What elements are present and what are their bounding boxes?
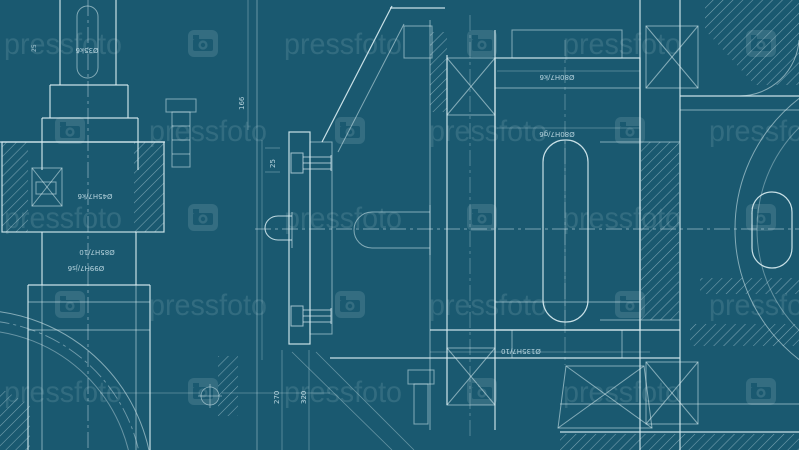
pressfoto-logo-icon [746,204,776,231]
pressfoto-logo-icon [467,378,497,405]
pressfoto-logo-icon [55,117,85,144]
dim-label: Ø80H7/k6 [539,73,575,81]
pressfoto-logo-icon [335,291,365,318]
watermark-text: pressfoto [284,28,402,61]
dim-label: 166 [238,96,246,110]
pressfoto-logo-icon [335,117,365,144]
pressfoto-logo-icon [188,204,218,231]
dim-label: Ø80H7/g6 [539,130,575,138]
pressfoto-logo-icon [746,378,776,405]
dim-label: 25 [269,159,277,168]
dim-label: Ø99H7/js6 [67,264,104,272]
watermark-text: pressfoto [4,28,122,61]
pressfoto-logo-icon [467,204,497,231]
dim-label: Ø135H7/10 [501,347,541,355]
watermark-text: pressfoto [149,115,267,148]
dim-label: Ø35k6 [75,46,98,54]
dim-label: 270 [273,391,281,404]
drawing-canvas: pressfoto pressfoto pressfoto pressfoto … [0,0,799,450]
dim-label: Ø85H7/10 [79,248,114,256]
dim-label: 25 [31,44,38,52]
pressfoto-logo-icon [188,378,218,405]
pressfoto-logo-icon [467,30,497,57]
watermark-text: pressfoto [284,202,402,235]
dim-label: Ø45H7/k6 [77,192,113,200]
pressfoto-logo-icon [188,30,218,57]
dim-label: 320 [300,391,308,404]
blueprint-image: pressfoto pressfoto pressfoto pressfoto … [0,0,799,450]
pressfoto-logo-icon [55,291,85,318]
watermark-text: pressfoto [149,289,267,322]
